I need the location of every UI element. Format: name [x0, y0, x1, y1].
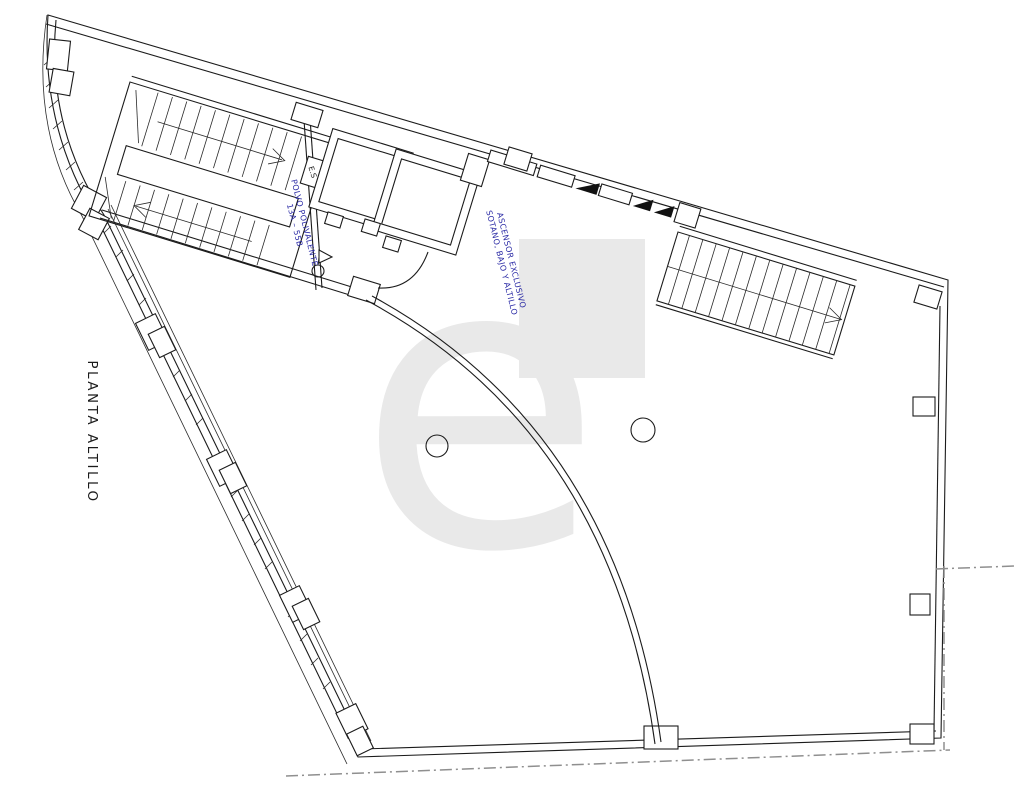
wall-column	[644, 726, 678, 749]
wall-column	[910, 594, 930, 615]
wall-pier	[291, 102, 323, 127]
floor-plan-drawing: e	[0, 0, 1016, 785]
bottom-wall-columns	[644, 724, 934, 749]
floor-plan-page: e	[0, 0, 1016, 785]
round-column	[631, 418, 655, 442]
facade-column-assembly	[136, 314, 374, 756]
facade-pilaster	[46, 39, 70, 71]
staircase-upper-right	[656, 226, 857, 359]
door-symbol-flag	[319, 250, 332, 263]
stair-landing-stringer	[117, 146, 298, 227]
wall-column	[910, 724, 934, 744]
door-symbol-circle	[312, 265, 324, 277]
facade-pilaster	[49, 68, 74, 95]
wall-column	[913, 397, 935, 416]
right-wall-columns	[910, 397, 935, 615]
plan-title: PLANTA ALTILLO	[84, 360, 100, 503]
wall-pier	[914, 285, 942, 309]
window	[598, 184, 632, 205]
